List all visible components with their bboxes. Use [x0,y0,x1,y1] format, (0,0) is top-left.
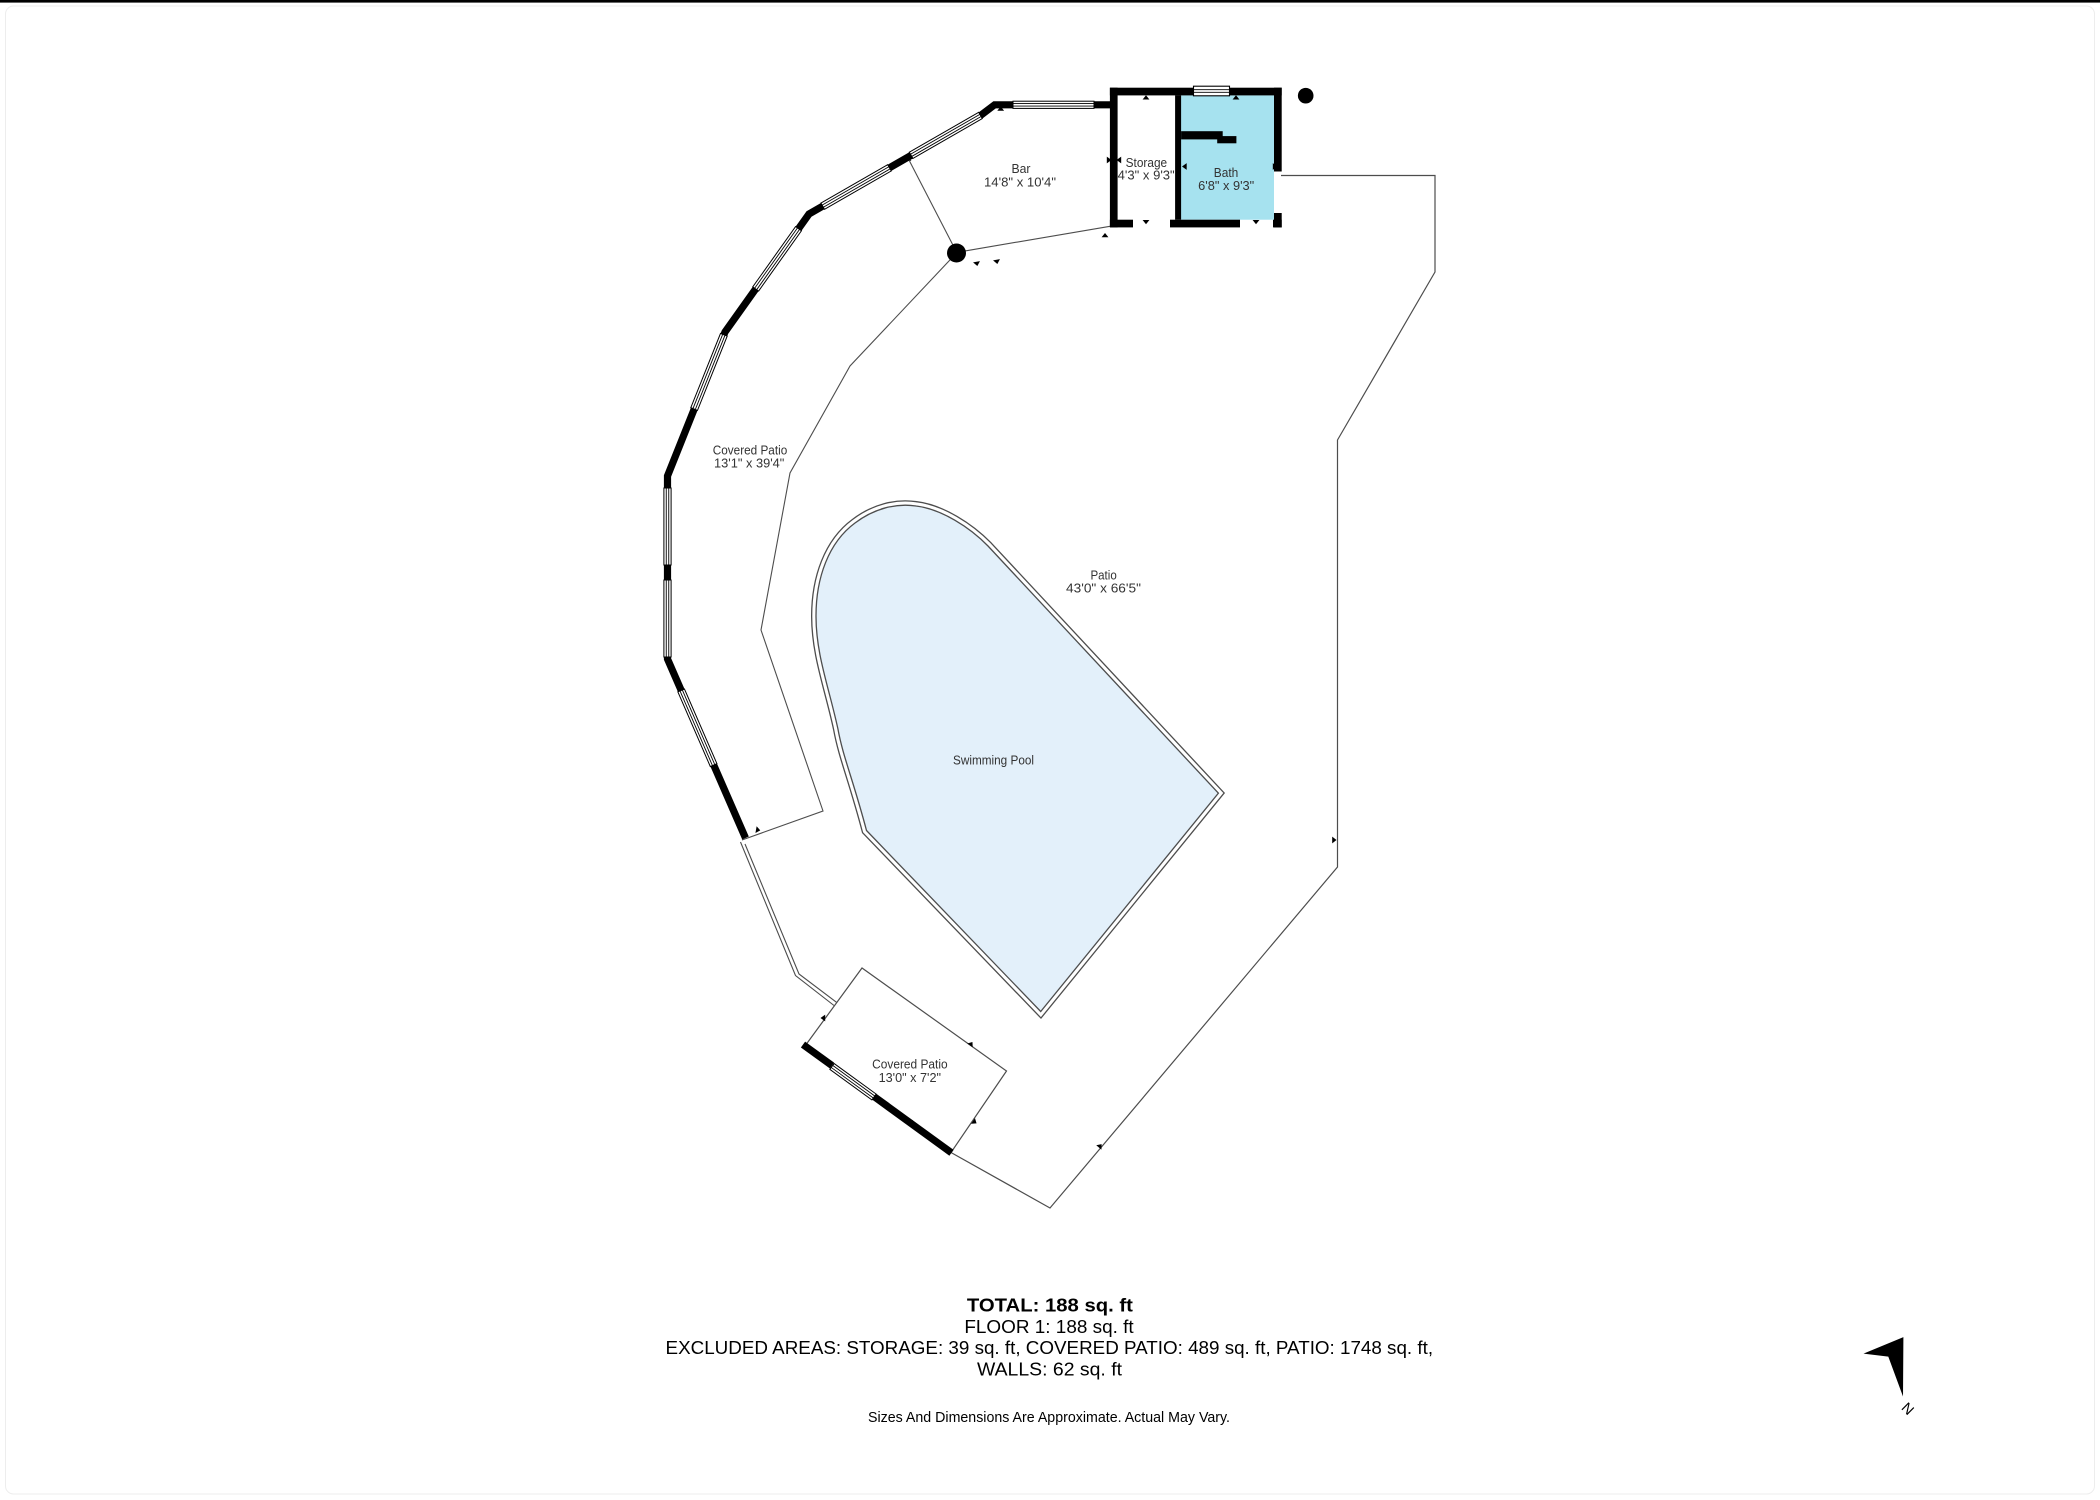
svg-text:TOTAL: 188 sq. ft: TOTAL: 188 sq. ft [967,1296,1133,1316]
svg-text:EXCLUDED AREAS: STORAGE: 39 sq: EXCLUDED AREAS: STORAGE: 39 sq. ft, COVE… [666,1338,1434,1358]
svg-text:4'3" x 9'3": 4'3" x 9'3" [1118,168,1175,182]
svg-text:Sizes And Dimensions Are Appro: Sizes And Dimensions Are Approximate. Ac… [868,1409,1230,1426]
svg-text:6'8" x 9'3": 6'8" x 9'3" [1198,179,1254,193]
svg-text:Bar: Bar [1012,162,1031,176]
svg-text:WALLS: 62 sq. ft: WALLS: 62 sq. ft [977,1359,1122,1379]
svg-text:FLOOR 1: 188 sq. ft: FLOOR 1: 188 sq. ft [964,1317,1133,1337]
svg-text:43'0" x 66'5": 43'0" x 66'5" [1066,581,1141,595]
svg-text:Covered Patio: Covered Patio [713,443,788,457]
svg-text:Covered Patio: Covered Patio [872,1058,948,1072]
svg-text:13'1" x 39'4": 13'1" x 39'4" [714,456,784,470]
svg-text:Patio: Patio [1090,568,1116,582]
svg-text:13'0" x 7'2": 13'0" x 7'2" [879,1071,941,1085]
svg-text:14'8" x 10'4": 14'8" x 10'4" [984,176,1056,190]
svg-text:Swimming Pool: Swimming Pool [953,754,1034,768]
